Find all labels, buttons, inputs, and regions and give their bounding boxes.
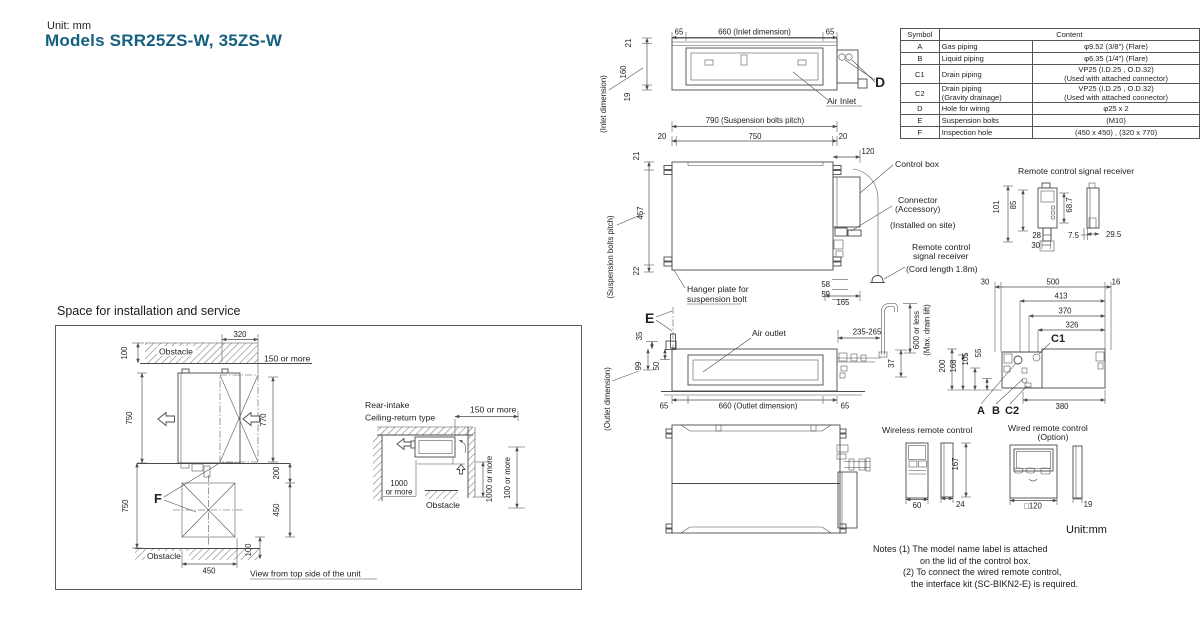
- note-text: The model name label is attached: [912, 544, 1047, 554]
- dim-label: 413: [1054, 292, 1067, 301]
- airflow-arrow-icon: [158, 413, 175, 426]
- symbol-b-label: B: [992, 405, 1000, 417]
- connector-label: (Installed on site): [890, 220, 956, 230]
- axis-label: (Inlet dimension): [599, 75, 608, 133]
- spec-sheet-page: { "colors": {"accent_title": "#16607f", …: [0, 0, 1200, 617]
- install-side-view: Rear-intake Ceiling-return type 150 or m…: [365, 400, 525, 510]
- wireless-remote-title: Wireless remote control: [882, 425, 972, 435]
- dim-label: 200: [938, 359, 947, 373]
- dim-label: 790 (Suspension bolts pitch): [706, 116, 805, 125]
- dim-label: 20: [658, 132, 667, 141]
- dim-label: 320: [233, 330, 247, 339]
- dimension-drawings: D Air Inlet 65 660 (Inlet dimension) 65 …: [595, 0, 1200, 617]
- clearance-label: 150 or more: [264, 354, 311, 364]
- dim-label: 660 (Inlet dimension): [718, 28, 791, 37]
- signal-receiver-icon: [872, 276, 883, 283]
- dim-label: 200: [272, 466, 281, 480]
- symbol-a-label: A: [977, 405, 985, 417]
- note-line: (2) To connect the wired remote control,: [903, 567, 1078, 579]
- dim-label: 500: [1046, 278, 1060, 287]
- receiver-detail-title: Remote control signal receiver: [1018, 166, 1134, 176]
- dim-label: 160: [619, 65, 628, 79]
- air-outlet-label: Air outlet: [752, 328, 787, 338]
- dim-label: 65: [660, 402, 669, 411]
- notes-label: Notes: [873, 544, 897, 554]
- dim-label: 105: [961, 352, 970, 366]
- air-inlet-label: Air Inlet: [827, 96, 857, 106]
- note-number: (1): [899, 544, 910, 554]
- note-line: on the lid of the control box.: [920, 556, 1078, 568]
- dim-label: 457: [636, 206, 645, 219]
- dim-label: 120: [861, 147, 875, 156]
- dim-label: 58: [821, 280, 830, 289]
- dim-label: 37: [887, 359, 896, 368]
- dim-label: 59: [821, 290, 830, 299]
- dim-label: 167: [951, 457, 960, 470]
- note-line: the interface kit (SC-BIKN2-E) is requir…: [911, 579, 1078, 591]
- dim-label: 370: [1058, 307, 1072, 316]
- dim-label: 21: [624, 39, 633, 48]
- symbol-c2-label: C2: [1005, 405, 1019, 417]
- dim-label: 20: [839, 132, 848, 141]
- symbol-c1-label: C1: [1051, 333, 1065, 345]
- dim-label: 30: [981, 278, 990, 287]
- install-panel: 320 Obstacle 100 150 or more 750 770: [55, 300, 585, 595]
- dim-label: 55: [974, 348, 983, 357]
- install-top-view: 320 Obstacle 100 150 or more 750 770: [120, 330, 377, 579]
- dim-label: 660 (Outlet dimension): [719, 402, 798, 411]
- obstacle-label: Obstacle: [426, 500, 460, 510]
- dim-label: 235-265: [853, 328, 882, 337]
- intake-type-label: Rear-intake: [365, 400, 410, 410]
- control-box-label: Control box: [895, 159, 940, 169]
- page-title: Models SRR25ZS-W, 35ZS-W: [45, 31, 282, 51]
- symbol-e-label: E: [645, 310, 654, 326]
- dim-label: 168: [949, 359, 958, 372]
- dim-label: 16: [1112, 278, 1121, 287]
- connector-label: (Accessory): [895, 204, 940, 214]
- wireless-remote: Wireless remote control 60 24 167: [882, 425, 972, 510]
- dim-label: 770: [259, 413, 268, 427]
- symbol-f-label: F: [154, 491, 162, 506]
- intake-type-label: Ceiling-return type: [365, 413, 435, 423]
- unit-note-bottom: Unit:mm: [1066, 524, 1107, 536]
- axis-label: (Outlet dimension): [603, 367, 612, 431]
- plan-view: 790 (Suspension bolts pitch) 20 750 20 1…: [606, 116, 978, 307]
- clearance-label: 150 or more: [470, 405, 517, 415]
- obstacle-label: Obstacle: [147, 551, 181, 561]
- dim-label: 30: [1031, 241, 1040, 250]
- obstacle-label: Obstacle: [159, 347, 193, 357]
- dim-label: 29.5: [1106, 230, 1122, 239]
- dim-label: 7.5: [1068, 231, 1080, 240]
- axis-label: (Suspension bolts pitch): [606, 215, 615, 299]
- bottom-view: [666, 425, 870, 533]
- front-view: E Air outlet 235-265 37 600 or les: [603, 304, 932, 431]
- hanger-plate-label: suspension bolt: [687, 294, 747, 304]
- note-text: To connect the wired remote control,: [916, 567, 1061, 577]
- dim-label: 60: [913, 501, 922, 510]
- dim-label: 35: [635, 331, 644, 340]
- clearance-label: or more: [386, 488, 413, 497]
- wired-remote: Wired remote control (Option) □120 19: [1008, 423, 1092, 511]
- dim-label: 101: [992, 200, 1001, 213]
- receiver-label: signal receiver: [913, 251, 969, 261]
- dim-label: 19: [1084, 500, 1093, 509]
- airflow-arrow-icon: [243, 413, 260, 426]
- dim-label: 99: [634, 362, 643, 371]
- dim-label: 450: [202, 567, 216, 576]
- dim-label: 326: [1065, 321, 1078, 330]
- note-text: on the lid of the control box.: [920, 556, 1031, 566]
- note-line: Notes (1) The model name label is attach…: [873, 544, 1078, 556]
- dim-label: 165: [836, 298, 850, 307]
- dim-label: 24: [956, 500, 965, 509]
- symbol-d-label: D: [875, 74, 885, 90]
- hanger-plate-label: Hanger plate for: [687, 284, 749, 294]
- dim-label: 450: [272, 503, 281, 517]
- note-number: (2): [903, 567, 914, 577]
- clearance-label: 1000 or more: [485, 456, 494, 502]
- dim-label: 50: [652, 361, 661, 370]
- clearance-label: 100 or more: [503, 457, 512, 499]
- receiver-label: (Cord length 1.8m): [906, 264, 978, 274]
- dim-label: 750: [125, 411, 134, 425]
- dim-label: 85: [1009, 200, 1018, 209]
- dim-label: 600 or less: [912, 311, 921, 349]
- dim-label: 65: [841, 402, 850, 411]
- dim-label: 65: [826, 28, 835, 37]
- dim-label: 22: [632, 267, 641, 276]
- dim-label: 750: [121, 499, 130, 513]
- dim-label: 21: [632, 152, 641, 161]
- view-caption: View from top side of the unit: [250, 569, 361, 579]
- receiver-detail: Remote control signal receiver 101 85 68…: [992, 166, 1134, 251]
- dim-label: 750: [748, 132, 762, 141]
- dim-label: 19: [623, 93, 632, 102]
- airflow-arrow-icon: [457, 465, 465, 475]
- dim-label: 28: [1032, 231, 1041, 240]
- dim-label: 68.7: [1065, 197, 1074, 212]
- side-view: 30 500 16 413 370 326 C1 A B C2: [938, 278, 1120, 418]
- dim-label: 380: [1055, 402, 1069, 411]
- notes-block: Notes (1) The model name label is attach…: [873, 544, 1078, 590]
- dim-label: 65: [675, 28, 684, 37]
- note-text: the interface kit (SC-BIKN2-E) is requir…: [911, 579, 1078, 589]
- dim-label: □120: [1024, 502, 1042, 511]
- dim-label: (Max. drain lift): [923, 304, 932, 356]
- dim-label: 100: [120, 346, 129, 360]
- wired-remote-option: (Option): [1037, 432, 1068, 442]
- airflow-arrow-icon: [397, 439, 411, 450]
